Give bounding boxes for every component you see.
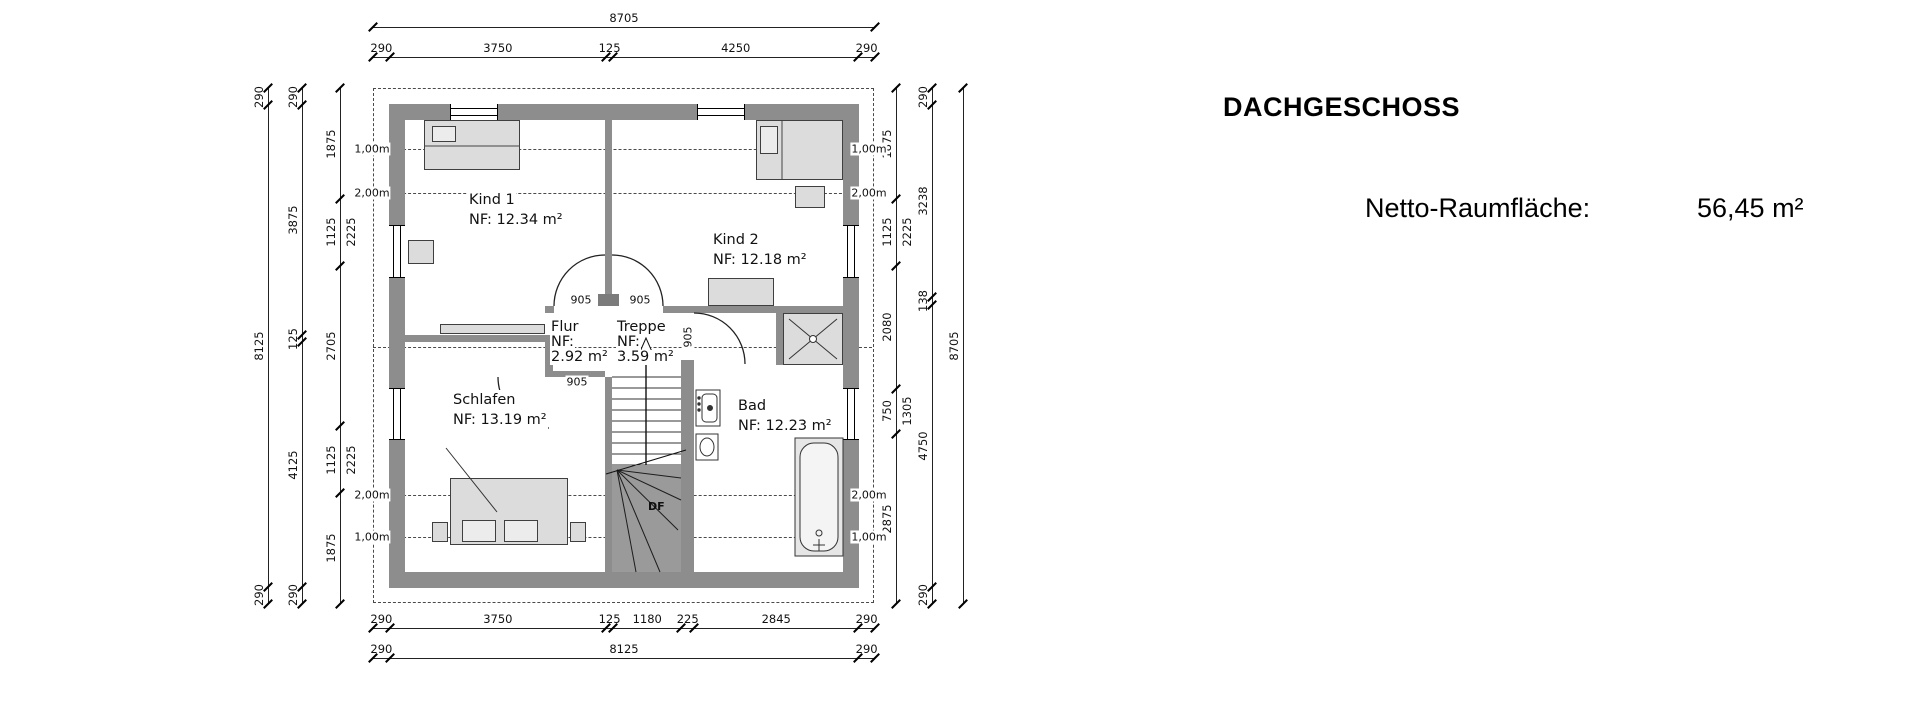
dim-line-left-total [268, 88, 269, 604]
room-label-line: NF: 12.23 m² [737, 416, 833, 436]
room-label-line: NF: 12.34 m² [468, 210, 564, 230]
netto-area-value: 56,45 m² [1697, 193, 1804, 224]
dim-label: 290 [287, 584, 299, 606]
dim-label: 290 [370, 643, 392, 655]
dim-label: 290 [856, 42, 878, 54]
dim-label: 4750 [917, 431, 929, 460]
room-label-line: Bad [737, 396, 767, 416]
room-label-kind2: Kind 2NF: 12.18 m² [712, 230, 808, 270]
dim-label: 8705 [609, 12, 638, 24]
height-label-right: 1,00m [850, 143, 887, 156]
schlafen-slope-line [446, 448, 497, 512]
dim-label: 1875 [325, 534, 337, 563]
room-label-treppe: TreppeNF:3.59 m² [616, 320, 675, 365]
dim-line-top-parts [373, 57, 875, 58]
room-label-bad: BadNF: 12.23 m² [737, 396, 833, 436]
height-label-right: 1,00m [850, 531, 887, 544]
plan-linework [0, 0, 1920, 724]
height-label-left: 1,00m [353, 143, 390, 156]
dim-label: 4125 [287, 450, 299, 479]
dim-label: 2845 [762, 613, 791, 625]
bathtub [795, 438, 843, 556]
height-label-right: 2,00m [850, 187, 887, 200]
dim-label: 8705 [948, 331, 960, 360]
door-width-label: 905 [566, 376, 589, 389]
height-label-left: 1,00m [353, 531, 390, 544]
room-label-line: Kind 2 [712, 230, 760, 250]
dim-label: 125 [599, 613, 621, 625]
dim-label-secondary: 2225 [345, 218, 357, 247]
room-label-kind1: Kind 1NF: 12.34 m² [468, 190, 564, 230]
dim-label: 290 [917, 86, 929, 108]
room-label-line: Schlafen [452, 390, 517, 410]
room-label-line: 3.59 m² [616, 350, 675, 365]
toilet [696, 434, 718, 460]
dim-label: 1125 [325, 445, 337, 474]
door-width-label: 905 [682, 326, 695, 349]
dim-line-right-total [963, 88, 964, 604]
dim-label: 3238 [917, 187, 929, 216]
dim-label: 125 [287, 328, 299, 350]
room-label-line: Kind 1 [468, 190, 516, 210]
dim-line-bottom-total [373, 658, 875, 659]
room-label-line: NF: [616, 335, 641, 350]
dim-line-left-inner [340, 88, 341, 604]
dim-label: 290 [287, 86, 299, 108]
dim-label: 1125 [881, 218, 893, 247]
dim-label-secondary: 1305 [901, 397, 913, 426]
dim-label: 225 [677, 613, 699, 625]
dim-label: 3875 [287, 205, 299, 234]
door-width-label: 905 [570, 294, 593, 307]
dim-line-right-parts [932, 88, 933, 604]
height-label-right: 2,00m [850, 489, 887, 502]
dim-label: 8125 [253, 331, 265, 360]
dim-label: 290 [370, 42, 392, 54]
dim-label: 290 [370, 613, 392, 625]
dim-line-left-parts [302, 88, 303, 604]
room-label-line: Flur [550, 320, 580, 335]
dim-label: 125 [599, 42, 621, 54]
room-label-line: NF: 12.18 m² [712, 250, 808, 270]
roof-window-label: DF [648, 500, 665, 513]
dim-label: 3750 [483, 613, 512, 625]
dim-label: 3750 [483, 42, 512, 54]
dim-label-secondary: 2225 [345, 445, 357, 474]
netto-area-label: Netto-Raumfläche: [1365, 193, 1590, 224]
dim-label: 2705 [325, 331, 337, 360]
dim-label: 1180 [633, 613, 662, 625]
room-label-flur: FlurNF:2.92 m² [550, 320, 609, 365]
dim-label: 290 [856, 643, 878, 655]
room-label-line: NF: [550, 335, 575, 350]
dim-label: 290 [856, 613, 878, 625]
dim-line-top-total [373, 27, 875, 28]
room-label-line: Treppe [616, 320, 667, 335]
room-label-line: 2.92 m² [550, 350, 609, 365]
dim-label: 290 [917, 584, 929, 606]
washbasin [696, 390, 720, 426]
page-title: DACHGESCHOSS [1223, 92, 1460, 123]
dim-label: 750 [881, 400, 893, 422]
room-label-line: NF: 13.19 m² [452, 410, 548, 430]
dim-label: 290 [253, 584, 265, 606]
height-label-left: 2,00m [353, 187, 390, 200]
dim-label-secondary: 2225 [901, 218, 913, 247]
height-label-left: 2,00m [353, 489, 390, 502]
dim-label: 138 [917, 290, 929, 312]
dim-label: 1125 [325, 218, 337, 247]
door-width-label: 905 [629, 294, 652, 307]
dim-label: 2080 [881, 313, 893, 342]
dim-label: 8125 [609, 643, 638, 655]
dim-label: 1875 [325, 129, 337, 158]
dim-label: 4250 [721, 42, 750, 54]
room-label-schlafen: SchlafenNF: 13.19 m² [452, 390, 548, 430]
dim-line-bottom-parts [373, 628, 875, 629]
dim-label: 2875 [881, 504, 893, 533]
floor-plan-page: DACHGESCHOSS Netto-Raumfläche: 56,45 m² [0, 0, 1920, 724]
dim-label: 290 [253, 86, 265, 108]
shower-symbol [789, 319, 837, 359]
dim-line-right-inner [896, 88, 897, 604]
